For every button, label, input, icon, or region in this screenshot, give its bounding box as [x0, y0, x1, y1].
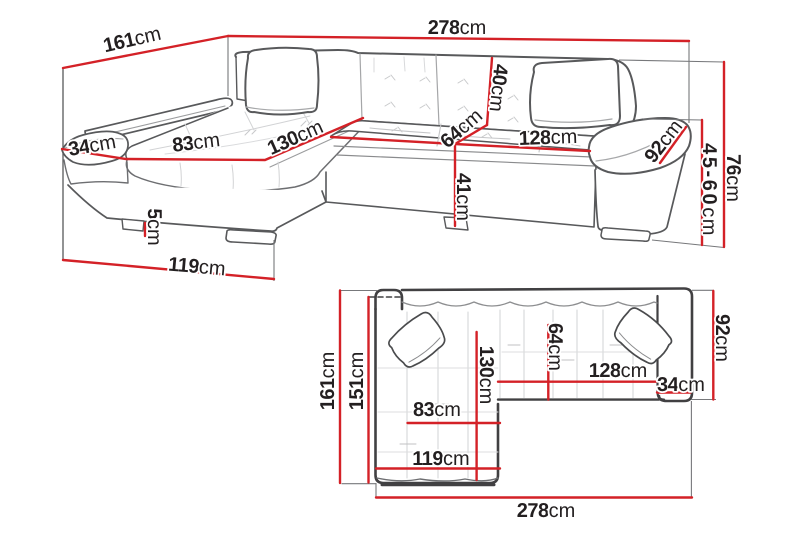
svg-text:278cm: 278cm [428, 17, 487, 39]
svg-text:41cm: 41cm [452, 173, 474, 221]
svg-text:34cm: 34cm [657, 374, 705, 396]
svg-text:128cm: 128cm [589, 360, 648, 382]
svg-text:5cm: 5cm [143, 208, 165, 245]
svg-text:45-60cm: 45-60cm [698, 143, 720, 237]
svg-text:76cm: 76cm [722, 154, 744, 202]
svg-text:161cm: 161cm [317, 352, 339, 411]
svg-text:130cm: 130cm [475, 346, 497, 405]
svg-text:151cm: 151cm [346, 352, 368, 411]
svg-text:128cm: 128cm [518, 126, 577, 150]
svg-text:119cm: 119cm [412, 448, 469, 470]
svg-text:83cm: 83cm [413, 399, 461, 421]
svg-text:278cm: 278cm [517, 500, 576, 522]
svg-text:92cm: 92cm [711, 314, 733, 362]
svg-text:64cm: 64cm [544, 323, 566, 371]
